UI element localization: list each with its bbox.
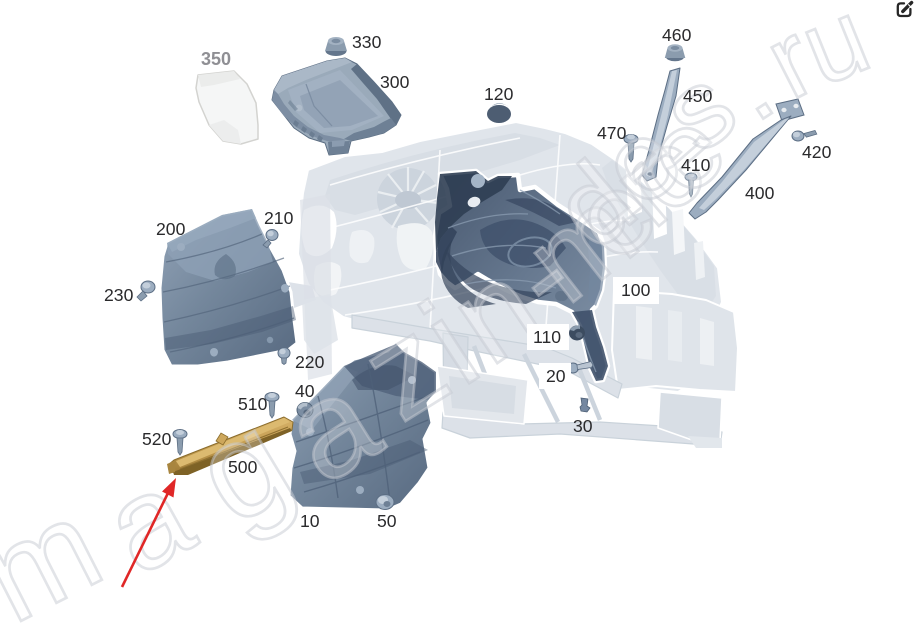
svg-text:110: 110 [533,327,561,347]
svg-text:400: 400 [745,183,775,203]
svg-text:10: 10 [300,511,320,531]
svg-text:300: 300 [380,72,410,92]
svg-text:20: 20 [546,366,566,386]
svg-text:40: 40 [295,381,315,401]
svg-text:210: 210 [264,208,294,228]
svg-text:510: 510 [238,394,268,414]
svg-text:120: 120 [484,84,514,104]
svg-text:470: 470 [597,123,627,143]
svg-text:420: 420 [802,142,832,162]
svg-text:450: 450 [683,86,713,106]
svg-text:410: 410 [681,155,711,175]
svg-text:500: 500 [228,457,258,477]
svg-text:350: 350 [201,49,231,69]
svg-text:220: 220 [295,352,325,372]
svg-text:200: 200 [156,219,186,239]
svg-text:520: 520 [142,429,172,449]
svg-text:230: 230 [104,285,134,305]
svg-text:50: 50 [377,511,397,531]
svg-text:100: 100 [621,280,651,300]
svg-text:330: 330 [352,32,382,52]
svg-text:30: 30 [573,416,593,436]
svg-text:460: 460 [662,25,692,45]
